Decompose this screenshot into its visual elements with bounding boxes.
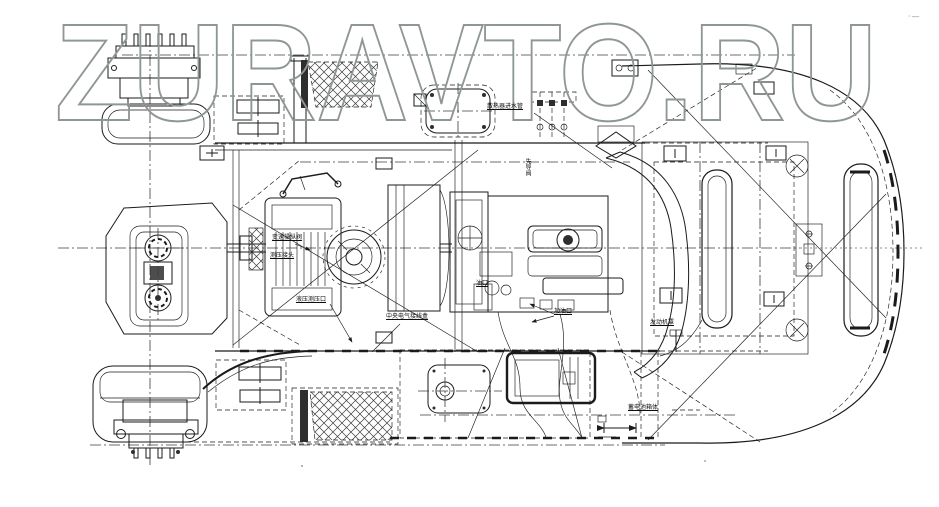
part-label-radiator-inlet: 散热器进水管 xyxy=(487,103,523,110)
part-label-engine-hood: 发动机罩 xyxy=(650,319,674,326)
underside-group xyxy=(400,348,636,438)
part-label-fill-port: 加油口 xyxy=(554,308,572,315)
part-label-test-fitting: 测压接头 xyxy=(270,252,294,259)
drawing-page: ZURAVTO.RU 散热器进水管 变速操纵阀 测压接头 液压测压口 中央电气接… xyxy=(0,0,939,507)
frame-rails xyxy=(162,140,768,442)
part-label-pilot-valve: 先导阀 xyxy=(524,158,531,176)
bottom-radiator-group xyxy=(216,360,398,444)
part-label-junction-box: 中央电气接线盒 xyxy=(386,313,428,320)
part-label-battery-box: 蓄电池箱体 xyxy=(628,404,658,411)
part-label-oil-port: 油口 xyxy=(476,280,488,287)
print-specks xyxy=(301,460,706,467)
part-label-hydraulic-port: 液压测压口 xyxy=(296,296,326,303)
watermark-text: ZURAVTO.RU xyxy=(55,0,877,150)
part-label-shift-control: 变速操纵阀 xyxy=(272,234,302,241)
center-frame xyxy=(106,146,478,352)
assembly-drawing: ZURAVTO.RU xyxy=(0,0,939,507)
corner-artifact: ·— xyxy=(908,12,921,21)
